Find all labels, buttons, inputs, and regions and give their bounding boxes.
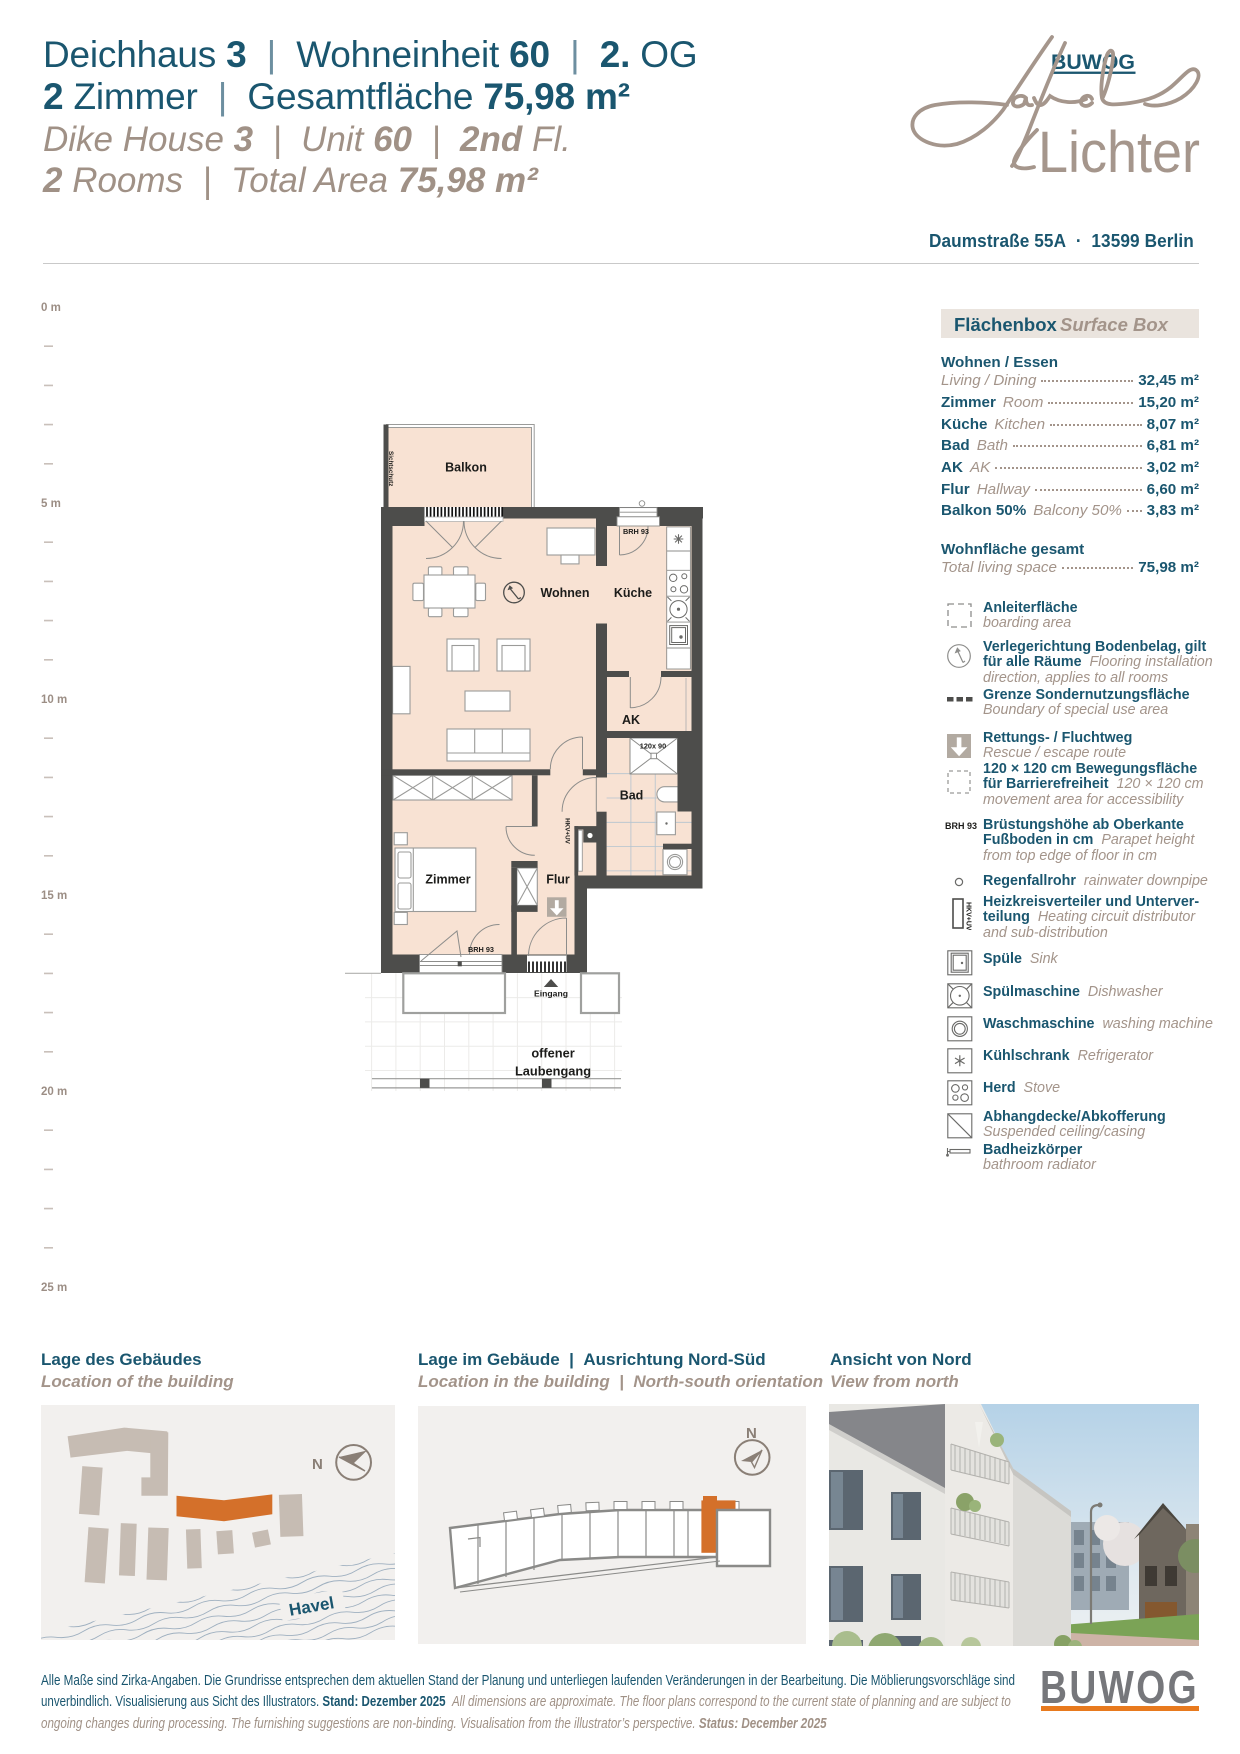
svg-text:10 m: 10 m <box>41 694 67 706</box>
svg-text:N: N <box>312 1456 323 1473</box>
svg-text:Zimmer: Zimmer <box>425 873 470 887</box>
svg-text:Lichter: Lichter <box>1038 120 1200 185</box>
svg-text:Wohnen: Wohnen <box>540 586 589 600</box>
svg-text:Balkon: Balkon <box>445 461 487 475</box>
svg-text:AK: AK <box>622 713 640 727</box>
svg-text:Laubengang: Laubengang <box>515 1064 591 1079</box>
svg-text:HKV+UV: HKV+UV <box>965 902 972 930</box>
svg-text:BUWOG: BUWOG <box>1040 1662 1199 1712</box>
svg-text:25 m: 25 m <box>41 1282 67 1294</box>
svg-text:N: N <box>746 1425 757 1442</box>
svg-text:Sichtschutz: Sichtschutz <box>387 451 394 486</box>
svg-text:20 m: 20 m <box>41 1086 67 1098</box>
svg-text:0 m: 0 m <box>41 302 61 314</box>
svg-text:120x 90: 120x 90 <box>640 742 666 751</box>
svg-text:Bad: Bad <box>620 789 644 803</box>
svg-text:BUWOG: BUWOG <box>1051 51 1135 74</box>
svg-text:HKV+UV: HKV+UV <box>564 818 571 845</box>
svg-text:Küche: Küche <box>614 586 652 600</box>
svg-text:Flur: Flur <box>546 873 570 887</box>
svg-text:BRH 93: BRH 93 <box>468 945 494 954</box>
svg-text:15 m: 15 m <box>41 890 67 902</box>
svg-text:BRH 93: BRH 93 <box>623 527 649 536</box>
svg-text:Eingang: Eingang <box>534 989 568 999</box>
svg-text:5 m: 5 m <box>41 498 61 510</box>
svg-text:offener: offener <box>531 1046 574 1061</box>
